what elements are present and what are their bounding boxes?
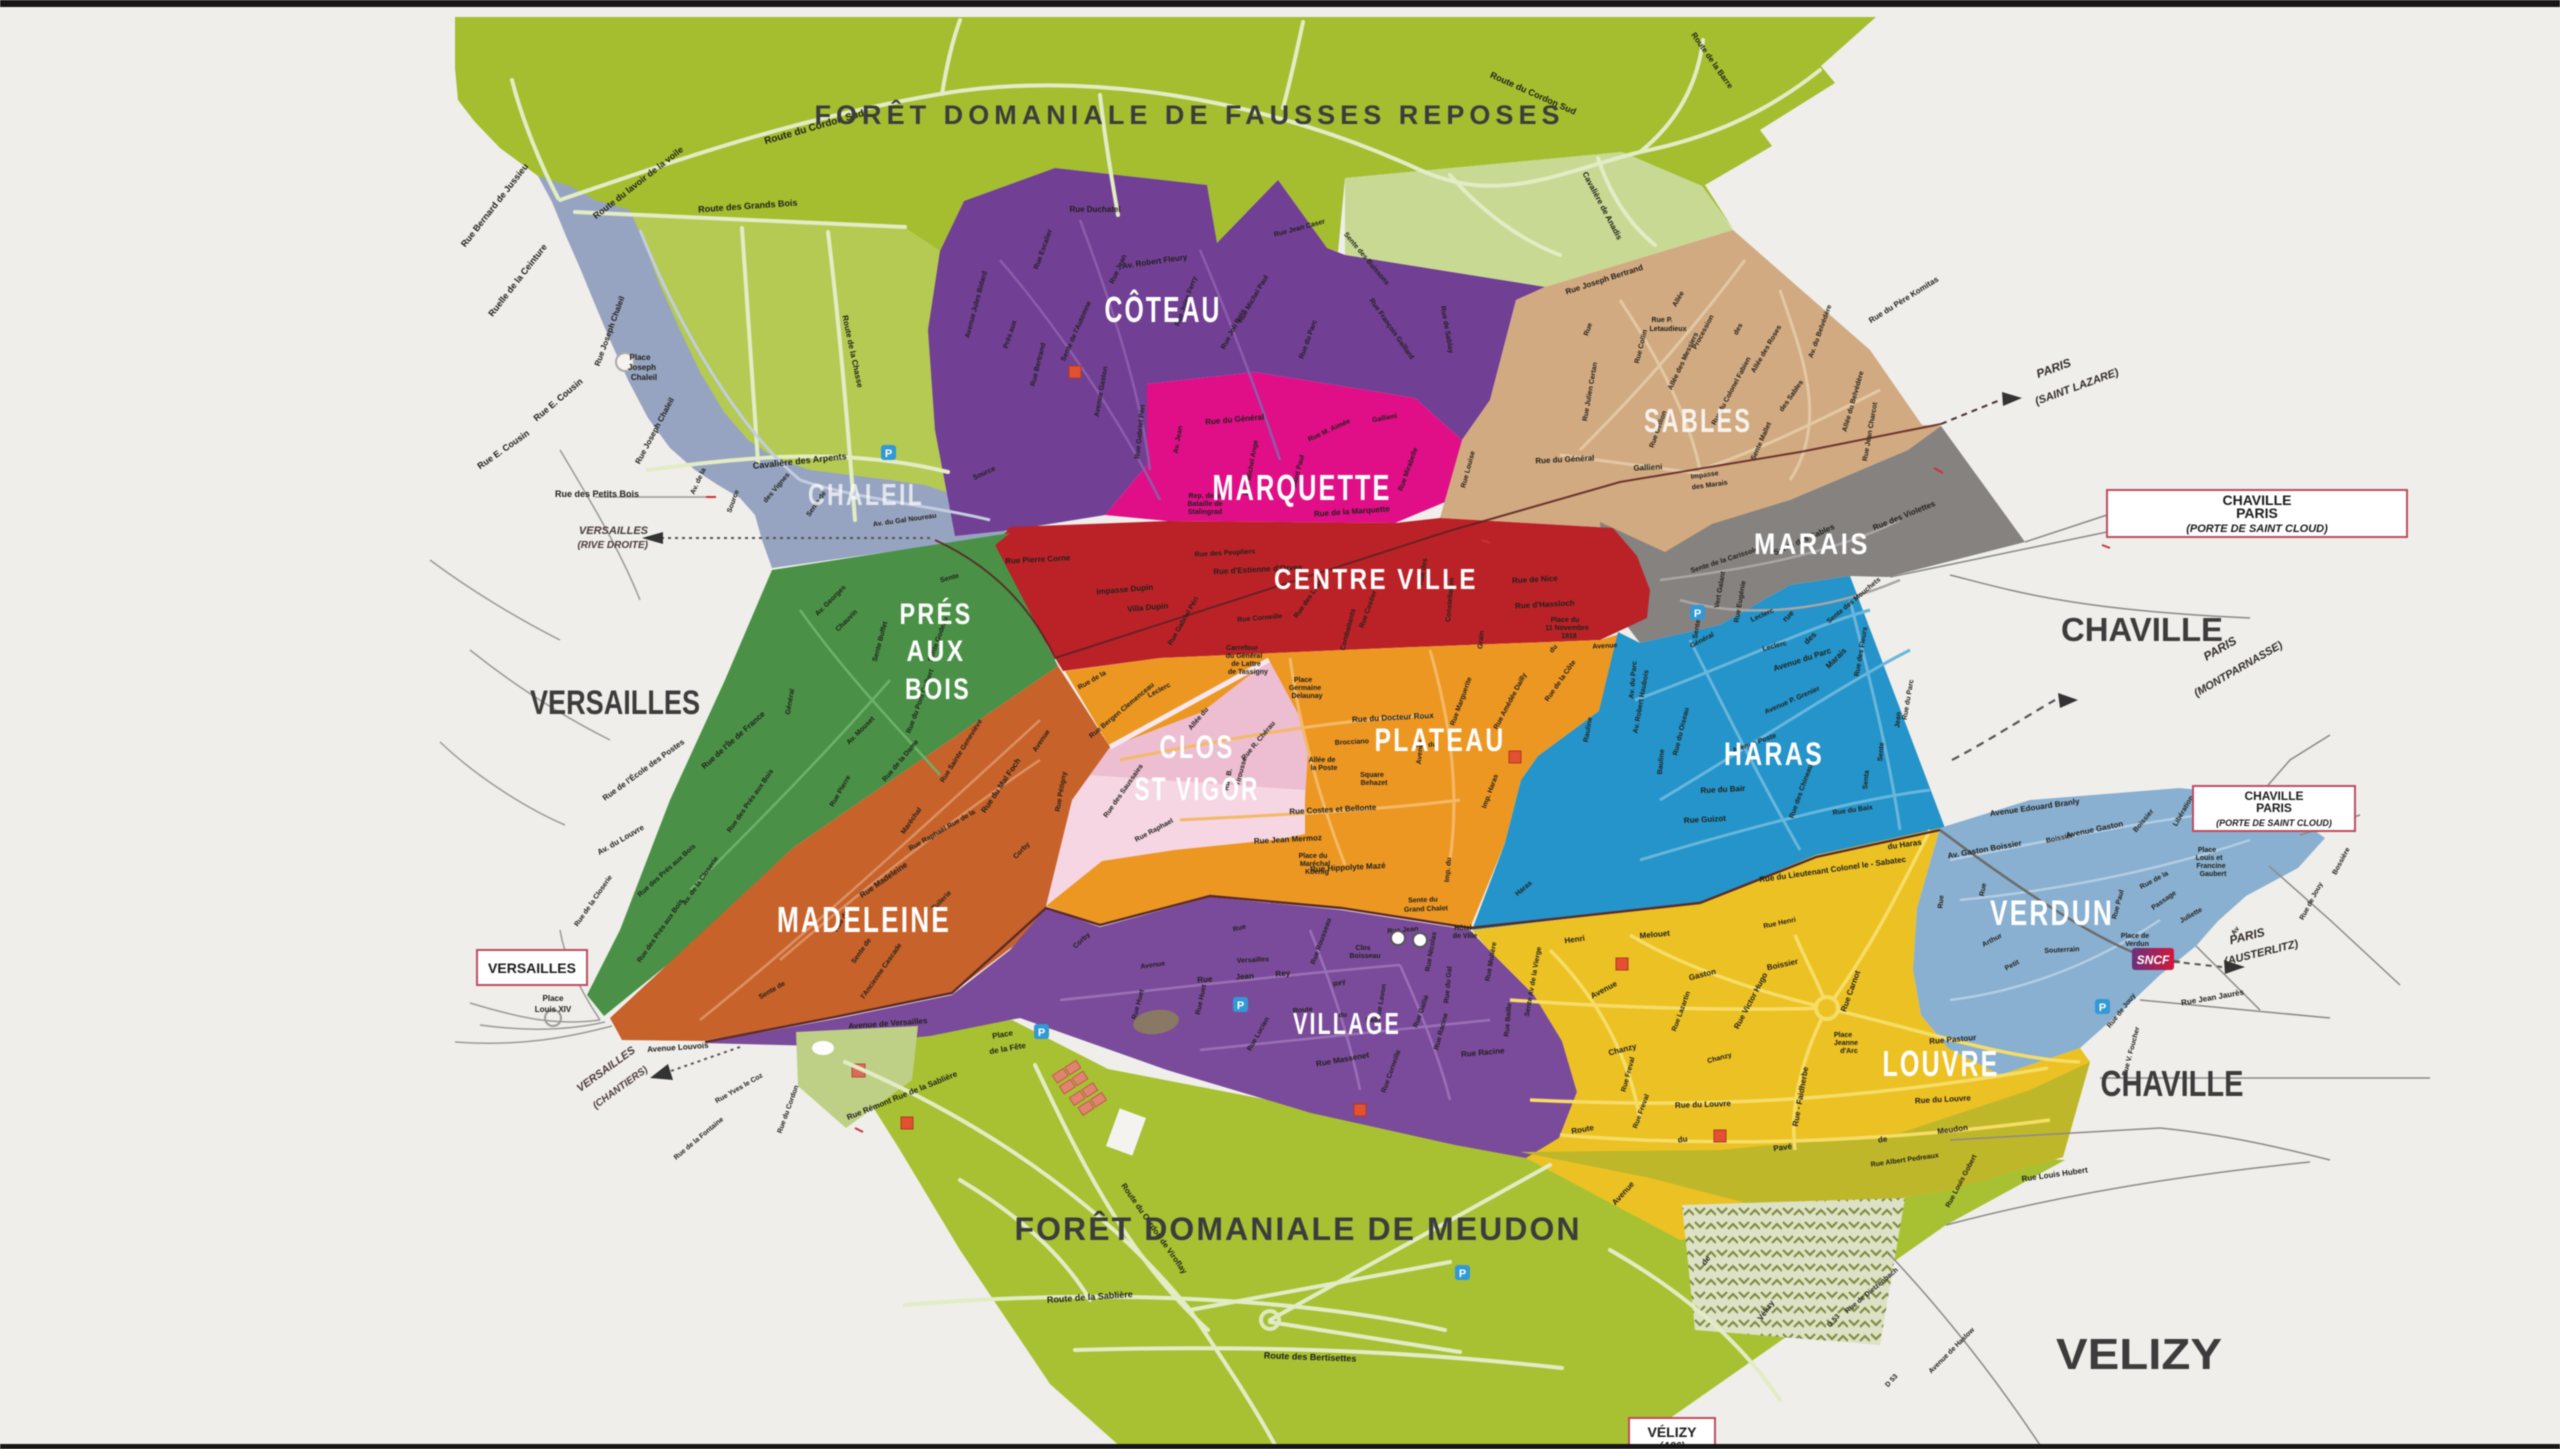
svg-text:Rue P.: Rue P. [1652,317,1673,324]
svg-text:PARIS: PARIS [2256,801,2292,815]
svg-text:PRÉS: PRÉS [900,597,973,631]
svg-text:Rue: Rue [1937,895,1945,909]
svg-text:Verdun: Verdun [2125,941,2149,948]
svg-text:(RIVE DROITE): (RIVE DROITE) [577,540,648,551]
svg-text:Place: Place [1294,677,1312,684]
svg-text:Germaine: Germaine [1289,685,1321,692]
svg-text:Francine: Francine [2196,863,2225,870]
svg-text:du Général: du Général [1226,653,1263,660]
svg-text:Sente du: Sente du [1408,896,1438,904]
svg-text:d'Arc: d'Arc [1840,1048,1858,1055]
svg-text:ST VIGOR: ST VIGOR [1135,771,1260,807]
svg-text:Place: Place [2198,847,2216,854]
svg-text:du: du [1677,1134,1688,1144]
svg-text:Jeanne: Jeanne [1834,1040,1858,1047]
svg-text:Letaudieux: Letaudieux [1650,326,1687,333]
svg-text:HARAS: HARAS [1724,736,1824,772]
svg-text:P: P [1694,608,1701,620]
svg-text:CHALEIL: CHALEIL [808,477,924,512]
svg-text:Joseph: Joseph [628,363,656,372]
svg-text:Delaunay: Delaunay [1291,693,1322,700]
svg-text:de: de [1877,1134,1888,1144]
svg-text:Koenig: Koenig [1305,869,1329,876]
svg-text:SNCF: SNCF [2137,953,2170,967]
svg-text:FORÊT DOMANIALE DE MEUDON: FORÊT DOMANIALE DE MEUDON [1015,1211,1580,1247]
svg-text:de Tassigny: de Tassigny [1228,669,1268,676]
svg-text:P: P [1038,1027,1045,1039]
svg-text:CLOS: CLOS [1160,729,1235,765]
svg-text:Place du: Place du [1299,853,1328,860]
svg-text:CHAVILLE: CHAVILLE [2101,1063,2244,1104]
svg-text:BOIS: BOIS [905,673,971,706]
svg-text:P: P [885,448,892,460]
svg-text:Place du: Place du [1551,617,1580,624]
svg-text:Jean: Jean [1235,971,1254,982]
svg-text:PARIS: PARIS [2236,505,2278,521]
svg-text:Stalingrad: Stalingrad [1188,509,1222,516]
svg-text:CENTRE VILLE: CENTRE VILLE [1274,564,1478,596]
svg-text:11 Novembre: 11 Novembre [1545,625,1589,632]
svg-text:1918: 1918 [1561,633,1577,640]
svg-text:Place: Place [630,353,651,362]
svg-text:P: P [2099,1002,2106,1014]
svg-text:Louis XIV: Louis XIV [535,1005,572,1014]
svg-text:CÔTEAU: CÔTEAU [1105,288,1222,330]
svg-text:Avenue: Avenue [1592,642,1617,650]
svg-text:Rue: Rue [1197,974,1213,984]
svg-text:de Lattre: de Lattre [1231,661,1261,668]
svg-text:Place: Place [1834,1032,1852,1039]
svg-text:VERSAILLES: VERSAILLES [579,525,649,537]
svg-text:AUX: AUX [907,635,966,668]
svg-text:MARAIS: MARAIS [1754,528,1870,561]
svg-text:VERDUN: VERDUN [1990,894,2114,933]
svg-text:LOUVRE: LOUVRE [1883,1043,2000,1084]
svg-text:PLATEAU: PLATEAU [1375,722,1506,758]
svg-text:Hôtel: Hôtel [1454,925,1472,932]
svg-text:Place: Place [543,994,564,1003]
svg-text:P: P [1237,1000,1244,1012]
svg-text:VERSAILLES: VERSAILLES [530,684,700,722]
svg-text:SABLES: SABLES [1644,402,1752,439]
svg-text:de Ville: de Ville [1453,933,1477,940]
svg-text:Chaleil: Chaleil [631,373,657,382]
svg-text:CHAVILLE: CHAVILLE [2061,611,2223,648]
svg-text:Carrefour: Carrefour [1226,645,1258,652]
svg-text:la Poste: la Poste [1311,765,1338,772]
svg-text:MARQUETTE: MARQUETTE [1213,467,1392,508]
svg-text:VERSAILLES: VERSAILLES [488,960,576,976]
svg-text:Jean: Jean [1894,712,1902,729]
svg-text:(PORTE DE SAINT CLOUD): (PORTE DE SAINT CLOUD) [2186,523,2328,535]
svg-text:P: P [1459,1268,1466,1280]
svg-text:Allée de: Allée de [1309,757,1336,764]
svg-text:Gallieni: Gallieni [1633,462,1662,473]
svg-text:Boisseau: Boisseau [1349,953,1380,960]
svg-text:VÉLIZY: VÉLIZY [1647,1424,1697,1440]
svg-text:Square: Square [1360,772,1384,779]
svg-text:Rue Duchatel: Rue Duchatel [1069,205,1120,214]
svg-text:VELIZY: VELIZY [2056,1330,2222,1379]
svg-text:Rue des Petits Bois: Rue des Petits Bois [555,489,639,499]
svg-text:(PORTE DE SAINT CLOUD): (PORTE DE SAINT CLOUD) [2216,818,2332,828]
svg-text:Place de: Place de [2121,933,2150,940]
svg-text:Clos: Clos [1355,945,1370,952]
svg-text:Behazet: Behazet [1361,780,1389,787]
svg-text:Gaubert: Gaubert [2200,871,2228,878]
svg-text:Maréchal: Maréchal [1300,861,1330,868]
svg-text:VILLAGE: VILLAGE [1293,1006,1401,1041]
svg-text:Rey: Rey [1275,968,1291,978]
svg-text:MADELEINE: MADELEINE [777,899,951,940]
svg-text:Louis et: Louis et [2196,855,2224,862]
